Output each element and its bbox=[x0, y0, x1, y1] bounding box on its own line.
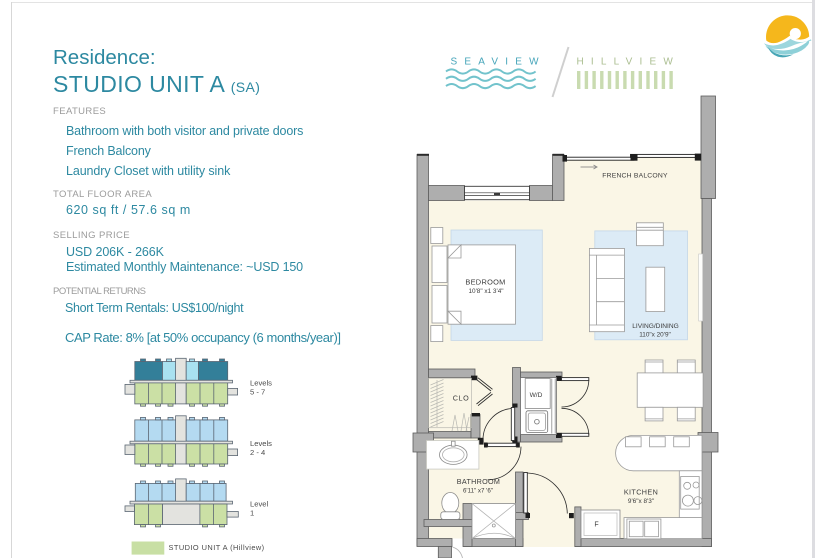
svg-text:Levels: Levels bbox=[250, 439, 272, 448]
svg-text:Levels: Levels bbox=[250, 379, 272, 388]
svg-text:6'11" x7 '6": 6'11" x7 '6" bbox=[463, 487, 493, 494]
svg-text:9'6"x 8'3": 9'6"x 8'3" bbox=[628, 498, 654, 505]
svg-text:5 - 7: 5 - 7 bbox=[250, 388, 265, 397]
svg-text:FRENCH BALCONY: FRENCH BALCONY bbox=[602, 173, 668, 180]
svg-text:LIVING/DINING: LIVING/DINING bbox=[632, 323, 679, 330]
svg-text:Level: Level bbox=[250, 500, 268, 509]
svg-text:10'8" x1 3'4": 10'8" x1 3'4" bbox=[468, 288, 503, 295]
svg-text:KITCHEN: KITCHEN bbox=[624, 487, 658, 496]
svg-text:110"x 20'9": 110"x 20'9" bbox=[639, 331, 671, 338]
svg-text:CLO: CLO bbox=[453, 393, 470, 402]
svg-text:BATHROOM: BATHROOM bbox=[457, 477, 500, 486]
svg-text:BEDROOM: BEDROOM bbox=[465, 278, 505, 287]
svg-text:HILLVIEW: HILLVIEW bbox=[577, 57, 681, 68]
svg-text:STUDIO UNIT A (Hillview): STUDIO UNIT A (Hillview) bbox=[169, 543, 265, 552]
svg-text:W/D: W/D bbox=[530, 392, 543, 399]
svg-text:1: 1 bbox=[250, 509, 254, 518]
svg-text:SEAVIEW: SEAVIEW bbox=[451, 57, 546, 68]
svg-text:F: F bbox=[594, 522, 598, 529]
svg-text:2 - 4: 2 - 4 bbox=[250, 448, 265, 457]
